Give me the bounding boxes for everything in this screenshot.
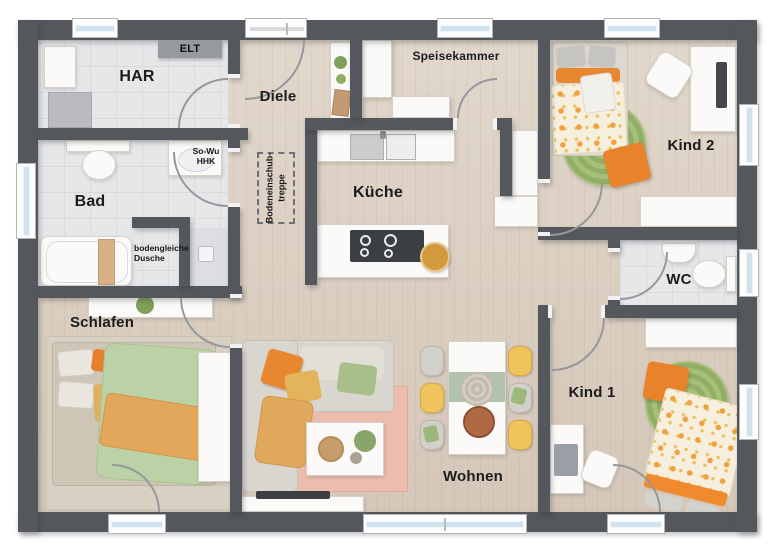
bathtub-inner <box>46 241 128 283</box>
toilet-tank-wc <box>726 256 736 292</box>
wall-shower-h <box>132 217 190 228</box>
jamb <box>493 118 497 130</box>
washing-machine <box>44 46 76 88</box>
window-kind1-right <box>739 384 759 440</box>
blanket-fold-kind2 <box>580 72 617 114</box>
loft-ladder-line1: Bodeneinschub- <box>264 153 276 224</box>
jamb <box>608 248 620 252</box>
loft-ladder-box: Bodeneinschub- treppe <box>257 152 295 224</box>
jamb <box>230 344 242 348</box>
elt-label: ELT <box>158 43 222 55</box>
cushion-green <box>336 362 377 396</box>
wall-kueche-left <box>305 118 317 285</box>
dining-chair-2 <box>420 383 444 413</box>
tray-coffee-table <box>318 436 344 462</box>
wardrobe-schlafen-right <box>198 352 232 482</box>
wall-pantry-stub <box>497 118 512 130</box>
jamb <box>453 118 457 130</box>
kitchen-tall-cabinet <box>512 130 538 196</box>
pantry-wall-white-v <box>362 40 392 98</box>
wall-har-right <box>228 40 240 78</box>
loft-ladder-line2: treppe <box>276 153 288 224</box>
pillow-schlafen-1 <box>57 348 95 377</box>
laptop-kind1 <box>554 444 578 476</box>
wall-wc-bottom <box>605 305 737 318</box>
bathtub-tray <box>98 239 115 285</box>
floor-plan: Bodeneinschub- treppe HAR ELT Diele Spei… <box>0 0 775 553</box>
wardrobe-kind2 <box>640 196 737 227</box>
room-label-wc: WC <box>659 272 699 289</box>
window-kind2-top <box>604 18 660 38</box>
shower-note-line2: Dusche <box>134 254 206 264</box>
jamb <box>548 305 552 318</box>
plant-diele-1 <box>334 56 347 69</box>
vase-coffee-table <box>350 452 362 464</box>
plant-coffee-table <box>354 430 376 452</box>
fruit-bowl <box>463 406 495 438</box>
wall-diele-pantry <box>350 40 362 118</box>
picture-frame-diele <box>331 89 351 117</box>
plant-diele-2 <box>336 74 346 84</box>
wall-schlafen-right <box>230 348 242 512</box>
tv <box>256 491 330 499</box>
so-wu-line2: HHK <box>182 157 230 167</box>
jamb <box>228 203 240 207</box>
room-label-schlafen: Schlafen <box>62 315 142 332</box>
so-wu-hhk-note: So-Wu HHK <box>182 147 230 167</box>
pantry-wall-white-h <box>392 96 450 118</box>
dining-chair-1 <box>420 346 444 376</box>
kitchen-sink-left <box>350 134 384 160</box>
jamb <box>228 124 240 128</box>
window-kind2-right <box>739 104 759 166</box>
room-label-kind1: Kind 1 <box>552 385 632 402</box>
entrance-door <box>245 18 307 38</box>
kitchen-sink-right <box>386 134 416 160</box>
wardrobe-kind1 <box>645 318 737 348</box>
food-bowl-island <box>420 242 450 272</box>
terrace-door-kind1 <box>607 514 665 534</box>
wall-kueche-right <box>500 130 512 196</box>
cooktop <box>350 230 424 262</box>
jamb <box>601 305 605 318</box>
jamb <box>228 74 240 78</box>
terrace-door-schlafen <box>108 514 166 534</box>
wall-kueche-top <box>305 118 453 130</box>
jamb <box>538 232 550 236</box>
room-label-diele: Diele <box>238 89 318 106</box>
wall-har-bad <box>38 128 248 140</box>
window-wohnen <box>363 514 527 534</box>
window-wc <box>739 249 759 297</box>
jamb <box>608 296 620 300</box>
monitor-kind2 <box>716 62 727 108</box>
kitchen-faucet <box>380 131 386 139</box>
room-label-kueche: Küche <box>338 184 418 202</box>
wall-kind1-left <box>538 318 550 512</box>
pillow-kind2-1 <box>555 44 587 69</box>
room-label-har: HAR <box>97 68 177 86</box>
room-label-kind2: Kind 2 <box>651 138 731 155</box>
plant-schlafen <box>136 296 154 314</box>
room-label-speisekammer: Speisekammer <box>396 50 516 63</box>
napkin-green-1 <box>422 425 439 444</box>
wall-bad-right-lower <box>228 207 240 298</box>
shower-note: bodengleiche Dusche <box>134 244 206 264</box>
loft-ladder-text: Bodeneinschub- treppe <box>264 153 287 224</box>
room-label-wohnen: Wohnen <box>433 469 513 486</box>
centerpiece-flowers <box>460 372 494 406</box>
room-label-bad: Bad <box>60 193 120 211</box>
window-har <box>72 18 118 38</box>
pillow-kind2-2 <box>587 45 617 69</box>
hall-cabinet <box>494 196 538 227</box>
jamb <box>538 179 550 183</box>
dining-chair-4 <box>508 346 532 376</box>
window-speisekammer <box>437 18 493 38</box>
wall-exterior-left <box>18 20 38 532</box>
toilet-bowl-bad <box>82 150 116 180</box>
window-bad <box>16 163 36 239</box>
dining-chair-6 <box>508 420 532 450</box>
desk-kind2 <box>690 46 736 132</box>
appliance-box <box>48 92 92 128</box>
wall-kind2-left <box>538 40 550 183</box>
jamb <box>230 294 242 298</box>
wall-bad-bottom <box>38 286 242 298</box>
pillow-schlafen-2 <box>57 381 95 409</box>
